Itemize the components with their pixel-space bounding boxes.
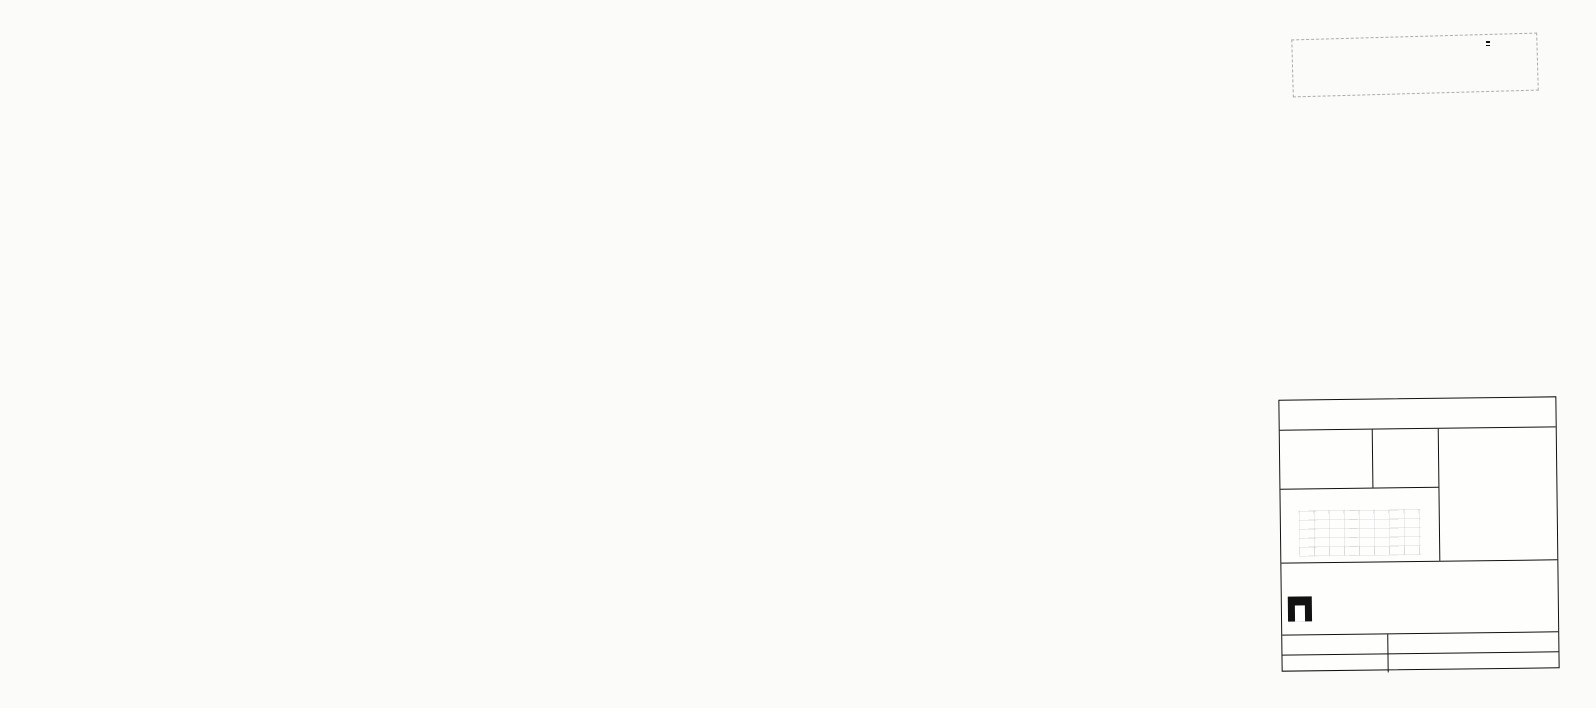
stamp-line bbox=[1303, 43, 1527, 49]
map-code-row bbox=[1282, 585, 1559, 634]
study-team bbox=[1441, 429, 1555, 434]
stamp-line bbox=[1303, 43, 1527, 49]
date-cell bbox=[1283, 657, 1388, 658]
scale-value bbox=[1282, 636, 1387, 637]
epa-years bbox=[1486, 43, 1490, 46]
legend bbox=[1032, 52, 1282, 60]
title-block-bottom bbox=[1282, 631, 1558, 672]
pi-sheet-symbol-icon bbox=[1288, 596, 1312, 621]
study-team-extra-rows bbox=[1441, 433, 1555, 434]
prefecture-cell bbox=[1397, 657, 1405, 675]
title-block-header bbox=[1279, 397, 1555, 430]
divider bbox=[1438, 429, 1441, 561]
photo-date-value bbox=[1374, 437, 1436, 438]
photo-date-cell bbox=[1374, 434, 1436, 438]
stamp-line bbox=[1303, 43, 1527, 49]
divider bbox=[1372, 430, 1374, 488]
study-team-header bbox=[1441, 429, 1555, 430]
divider bbox=[1282, 651, 1558, 655]
sheet-index-grid bbox=[1299, 509, 1422, 556]
scale-cell bbox=[1282, 636, 1387, 637]
study-team-rows bbox=[1441, 431, 1555, 432]
cadastral-map-drawing bbox=[0, 0, 1030, 708]
title-block-mid bbox=[1280, 427, 1558, 562]
title-block bbox=[1278, 396, 1559, 671]
divider bbox=[1280, 487, 1438, 490]
map-sheet bbox=[0, 0, 1596, 708]
epa-label bbox=[1486, 40, 1490, 46]
planning-unit-row bbox=[1281, 559, 1557, 588]
approval-stamp-icon bbox=[1291, 33, 1539, 98]
municipality-cell bbox=[1396, 637, 1406, 655]
